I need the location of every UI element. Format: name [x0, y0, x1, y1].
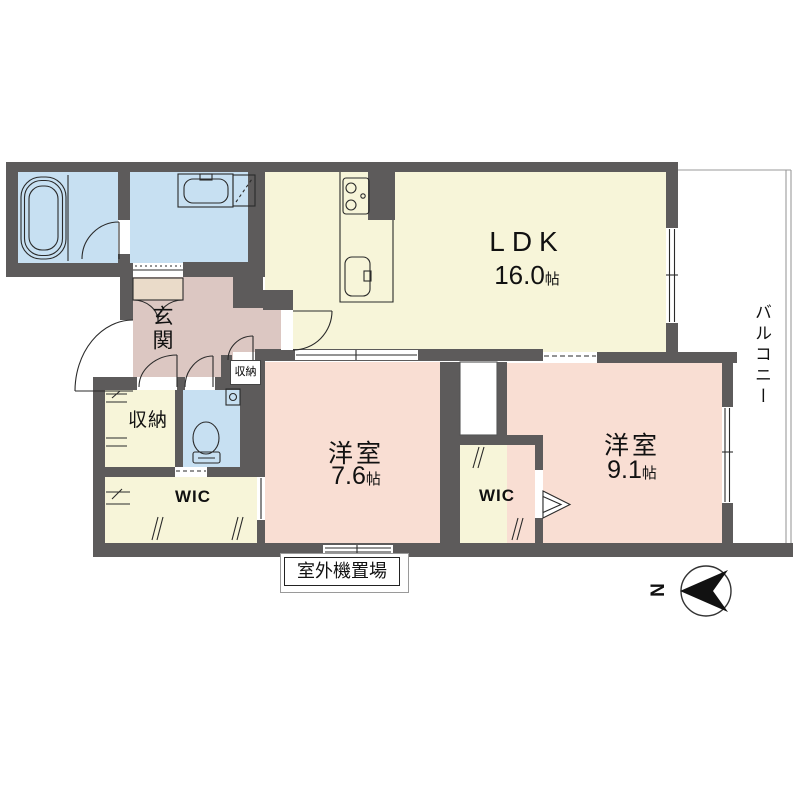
door-wic1-sliding — [257, 477, 265, 520]
wall-bath-divider-2 — [118, 254, 130, 266]
room-toilet — [183, 387, 240, 467]
bedroom1-area-unit: 帖 — [366, 471, 381, 488]
wall-wic2-east-1 — [535, 437, 543, 470]
wall-wic2-east-2 — [535, 518, 543, 545]
wall-storage-toilet — [175, 387, 183, 467]
wall-bath-bottom — [6, 263, 133, 277]
door-wic2-folding — [535, 470, 543, 518]
window-ldk-balcony — [666, 228, 678, 323]
shoe-cabinet — [133, 278, 183, 300]
wall-top — [6, 162, 678, 172]
ldk-name-label: LDK — [462, 226, 592, 258]
doorway-bedroom2-open — [543, 352, 597, 362]
wall-entrance-west — [120, 268, 133, 320]
window-bedroom2-balcony — [722, 407, 733, 503]
wall-kitchen-stub — [368, 172, 395, 220]
pipe-space — [460, 362, 497, 435]
bedroom1-area-label: 7.6帖 — [299, 462, 413, 491]
wall-left-upper — [6, 162, 18, 277]
north-label: N — [648, 583, 670, 597]
wall-washroom-right — [248, 162, 265, 266]
room-washroom — [130, 170, 248, 266]
bedroom2-area-value: 9.1 — [607, 456, 642, 484]
door-ldk-opening — [281, 310, 293, 350]
outdoor-unit-box: 室外機置場 — [280, 553, 409, 593]
outdoor-unit-label: 室外機置場 — [284, 557, 400, 586]
bedroom2-area-unit: 帖 — [642, 465, 657, 482]
hall-storage-label: 収納 — [230, 360, 261, 385]
wall-wic2-top — [452, 435, 543, 445]
storage-label: 収納 — [128, 405, 168, 432]
door-toilet-opening — [185, 377, 215, 390]
room-hallway — [183, 307, 281, 352]
wall-bottom — [93, 543, 793, 557]
wall-bedroom1-east — [440, 362, 460, 545]
door-storage-opening — [137, 377, 177, 390]
entrance-label: 玄関 — [146, 305, 176, 353]
bedroom1-area-value: 7.6 — [331, 462, 366, 490]
north-compass-icon — [680, 566, 731, 616]
balcony-label: バルコニー — [749, 303, 774, 408]
ldk-area-label: 16.0帖 — [452, 260, 602, 291]
bedroom2-area-label: 9.1帖 — [575, 456, 689, 485]
wall-ps-right — [497, 362, 507, 442]
ldk-area-unit: 帖 — [545, 271, 560, 288]
opening-dashed-vent — [175, 467, 207, 477]
door-bedroom1-sliding — [295, 350, 418, 360]
wall-hall-block — [233, 272, 263, 308]
door-washroom-sliding — [133, 263, 183, 277]
ldk-area-value: 16.0 — [494, 260, 545, 290]
wic1-label: WIC — [175, 487, 211, 507]
wall-bath-divider — [118, 172, 130, 220]
floor-plan: 玄関 収納 収納 WIC WIC LDK 16.0帖 洋室 7.6帖 洋室 9.… — [0, 0, 800, 800]
wic2-label: WIC — [479, 486, 515, 506]
room-bathroom — [18, 172, 118, 263]
